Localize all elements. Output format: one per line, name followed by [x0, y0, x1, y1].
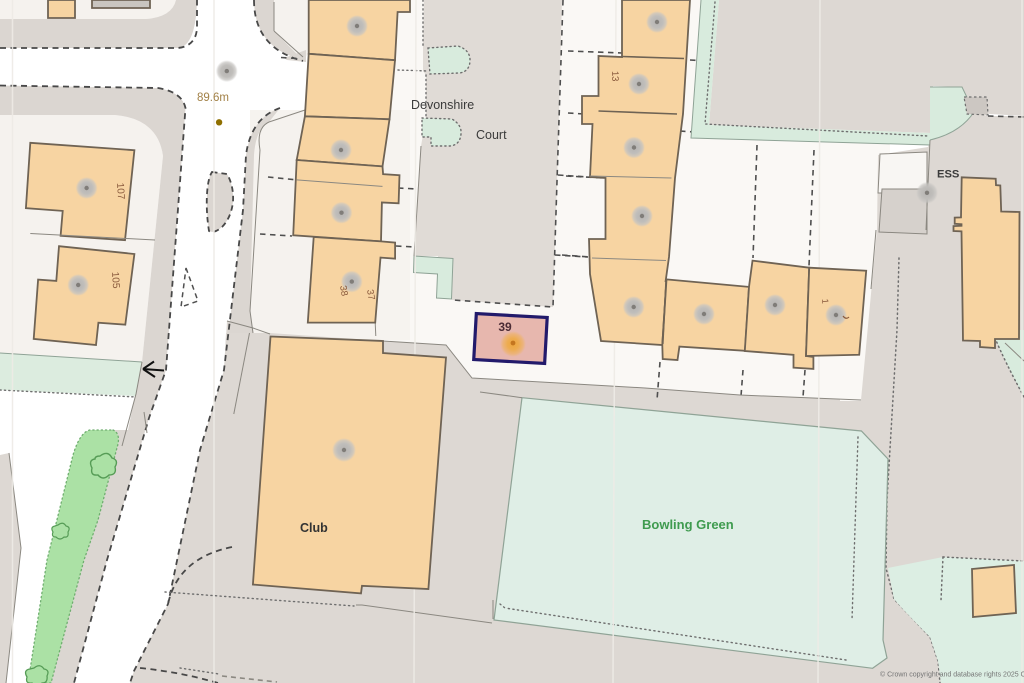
svg-text:ESS: ESS — [937, 169, 960, 181]
svg-text:Club: Club — [300, 521, 328, 535]
svg-text:1: 1 — [820, 298, 830, 304]
svg-text:Devonshire: Devonshire — [411, 98, 474, 112]
svg-text:89.6m: 89.6m — [197, 92, 229, 104]
svg-text:Bowling Green: Bowling Green — [642, 517, 734, 532]
svg-text:105: 105 — [109, 271, 121, 289]
svg-text:39: 39 — [498, 320, 512, 334]
svg-text:107: 107 — [114, 182, 126, 200]
svg-text:38: 38 — [337, 285, 350, 297]
svg-text:13: 13 — [609, 71, 620, 82]
svg-text:Court: Court — [476, 128, 507, 142]
svg-text:37: 37 — [364, 289, 377, 301]
svg-text:© Crown copyright and database: © Crown copyright and database rights 20… — [880, 671, 1024, 679]
